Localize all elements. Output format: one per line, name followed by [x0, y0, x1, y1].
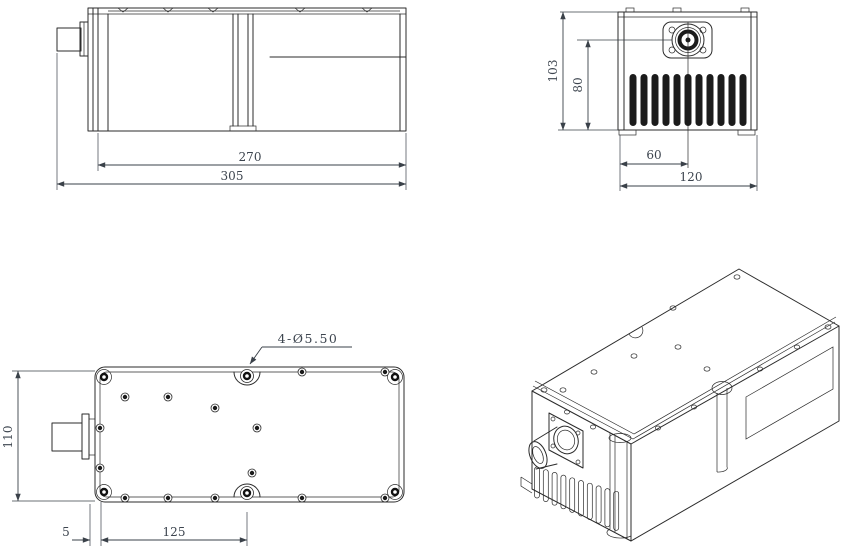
mount-hole-callout-label: 4-Ø5.50: [278, 331, 339, 346]
iso-mid-ear-post: [712, 382, 732, 473]
dim-overall-depth-label: 110: [1, 426, 15, 449]
dim-overall-height-label: 103: [546, 60, 560, 83]
dim-body-length-label: 270: [239, 150, 262, 164]
dim-hole-edge-offset-label: 5: [62, 525, 70, 539]
front-view-vents: [630, 74, 747, 126]
dim-hole-spacing-label: 125: [163, 525, 186, 539]
dim-overall-width-label: 120: [680, 170, 703, 184]
side-view-dimensions: 270 305: [57, 53, 406, 190]
dim-overall-length-label: 305: [221, 169, 244, 183]
top-view-dimensions: 110 5 125 4-Ø5.50: [1, 331, 352, 546]
iso-connector: [525, 413, 583, 471]
engineering-drawing-canvas: 270 305: [0, 0, 841, 547]
top-view-connector: [52, 414, 95, 459]
side-view-connector: [57, 22, 88, 56]
side-view-outline: [88, 8, 406, 131]
iso-label-recess: [746, 347, 833, 439]
dim-connector-offset-label: 60: [646, 148, 661, 162]
side-view: 270 305: [57, 8, 406, 190]
drawing-sheet: 270 305: [0, 0, 841, 547]
top-view-mount-ears: [97, 370, 403, 500]
iso-body-outline: [521, 269, 839, 541]
front-view: 103 80 60 120: [546, 8, 757, 191]
top-view: 110 5 125 4-Ø5.50: [1, 331, 404, 546]
isometric-view: [521, 269, 839, 541]
mount-hole-callout: 4-Ø5.50: [250, 331, 352, 364]
top-view-outline: [95, 367, 404, 502]
iso-vent-fins: [535, 467, 619, 530]
dim-connector-height-label: 80: [571, 77, 585, 92]
side-view-groove: [230, 14, 256, 131]
iso-top-screws: [541, 275, 831, 430]
top-view-screws: [96, 368, 389, 502]
